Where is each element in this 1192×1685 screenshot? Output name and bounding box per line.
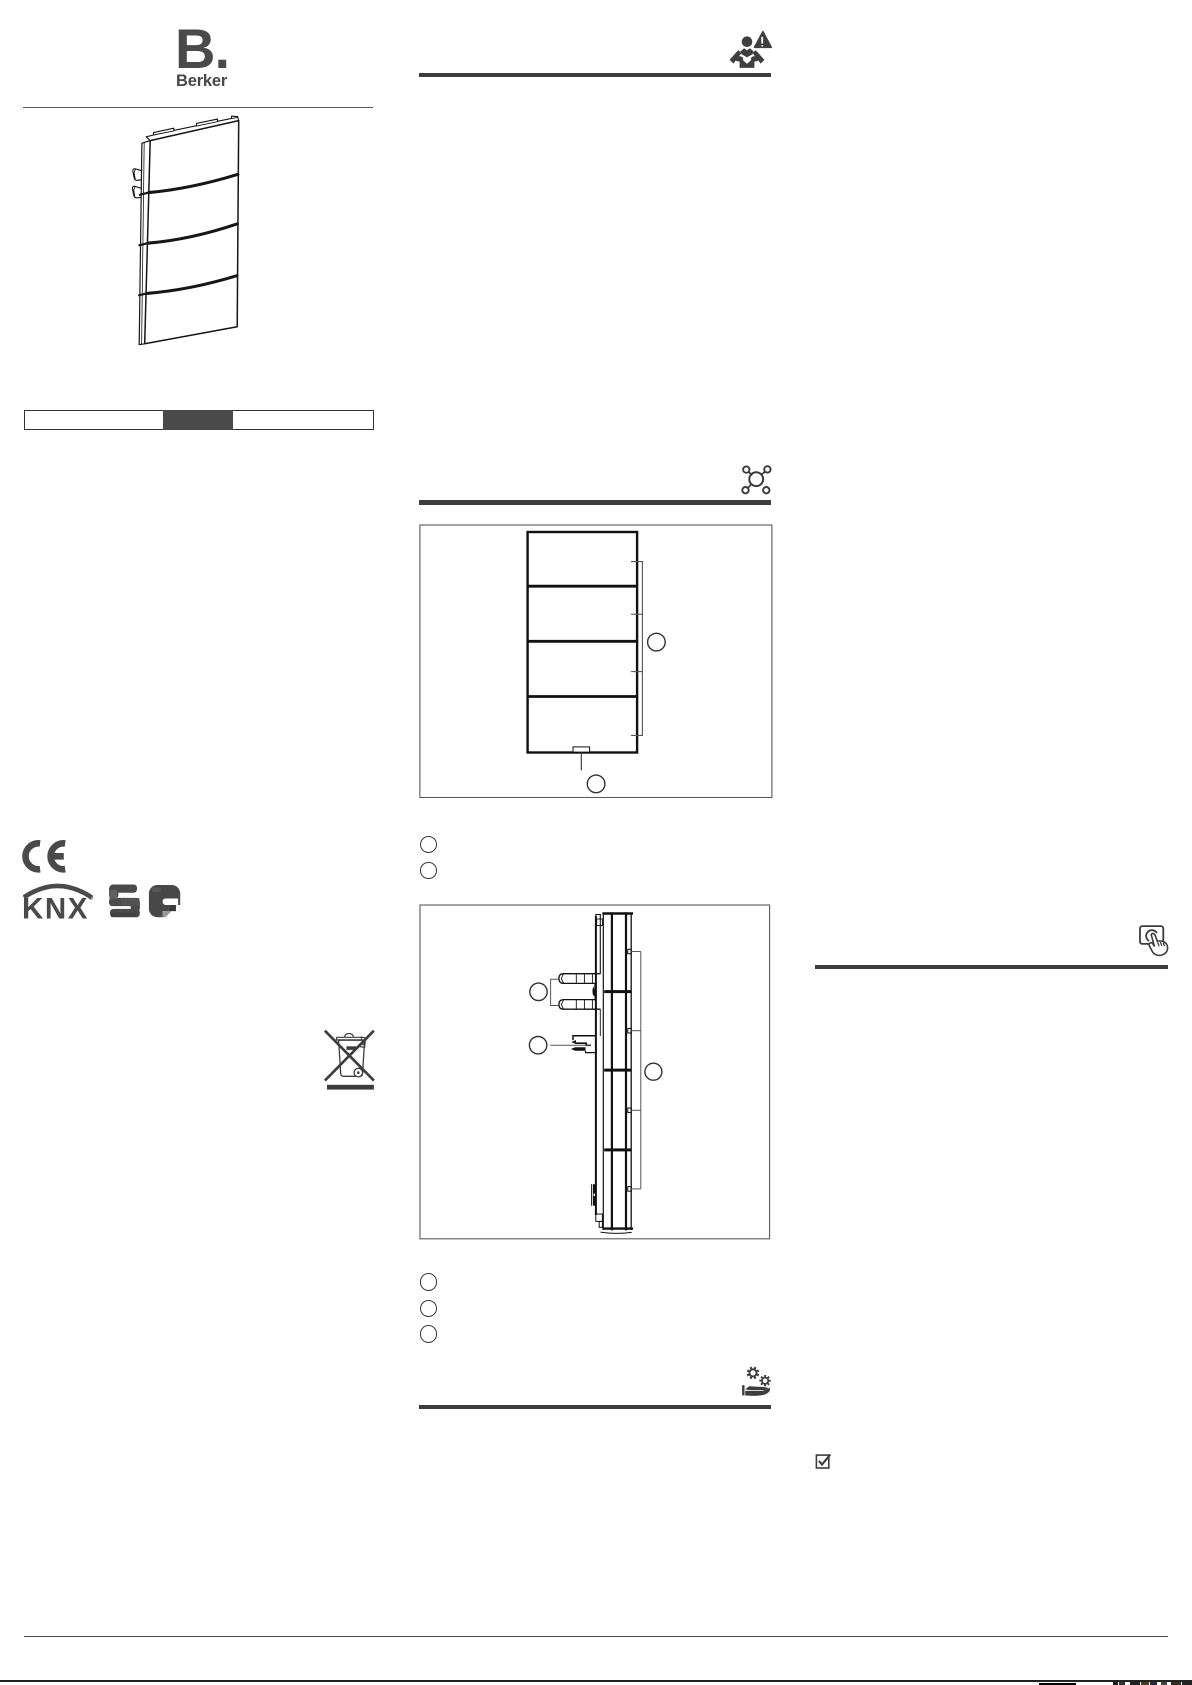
- svg-text:KNX: KNX: [23, 893, 89, 922]
